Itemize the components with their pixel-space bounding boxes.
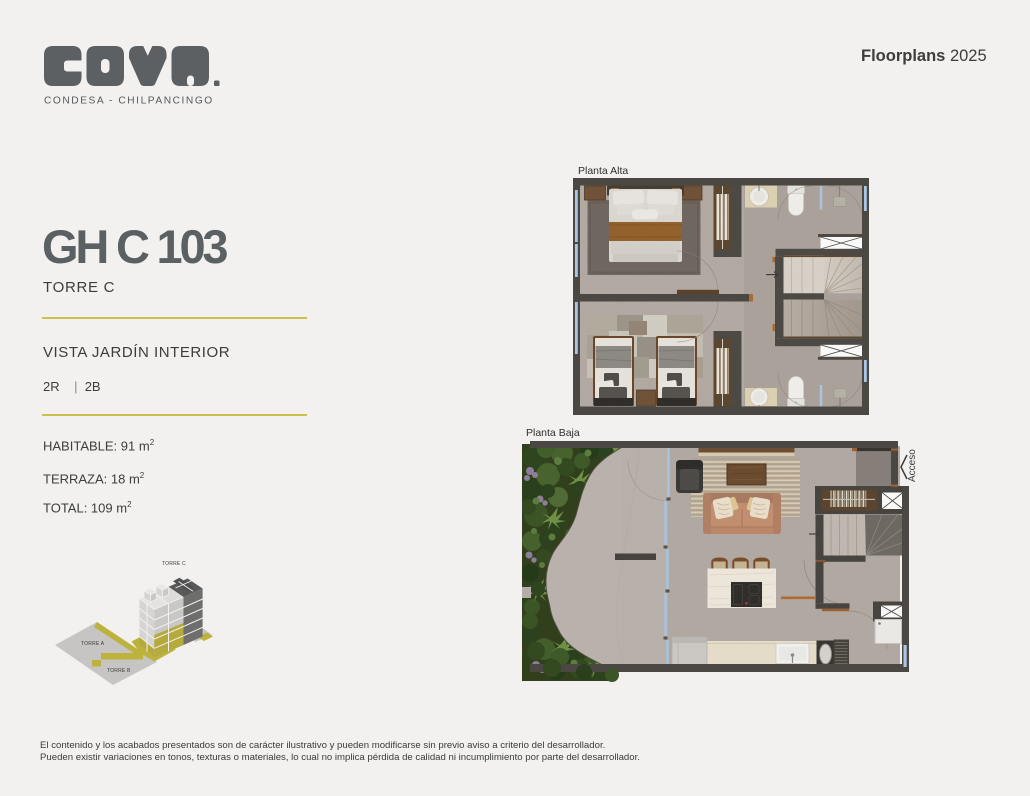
- svg-text:TORRE B: TORRE B: [107, 668, 131, 674]
- svg-text:TORRE A: TORRE A: [81, 641, 105, 647]
- svg-text:CONDESA - CHILPANCINGO: CONDESA - CHILPANCINGO: [44, 96, 214, 107]
- svg-text:TORRE C: TORRE C: [162, 561, 186, 567]
